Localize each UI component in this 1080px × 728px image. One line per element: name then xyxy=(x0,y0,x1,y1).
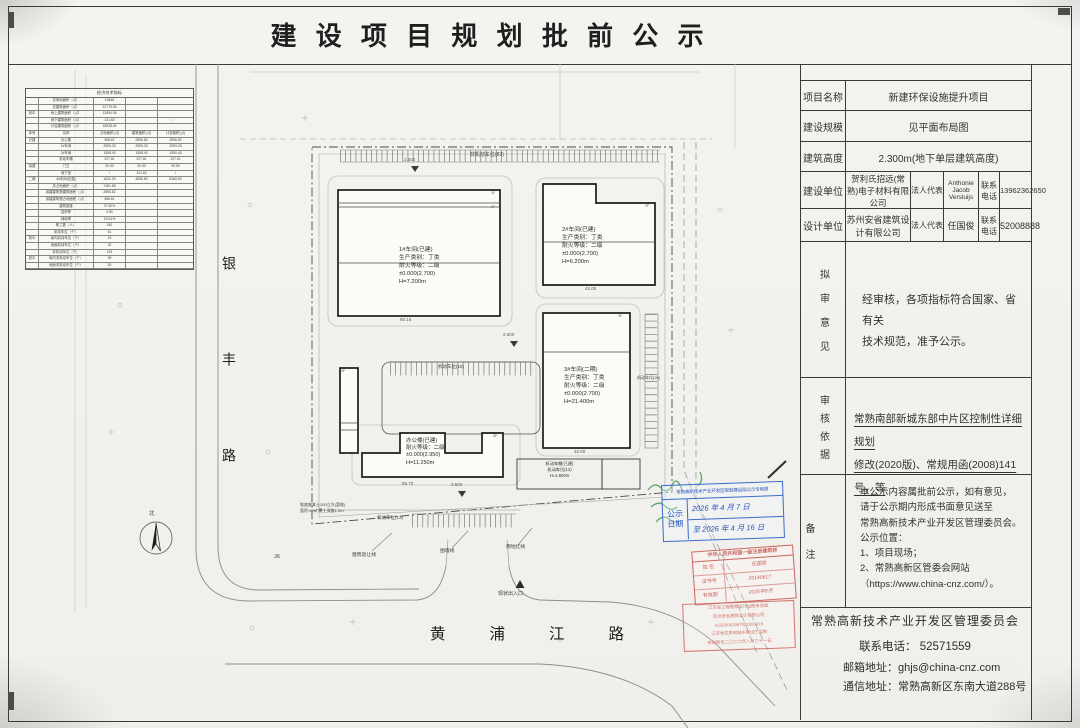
dim-office: 65.70 xyxy=(402,481,413,486)
scanned-planning-notice: 建 设 项 目 规 划 批 前 公 示 xyxy=(0,0,1080,728)
floor-mark: 3F xyxy=(341,369,345,373)
designer-rep: 任国俊 xyxy=(944,209,979,242)
building-label-line: ±0.000(2.700) xyxy=(562,250,603,258)
field-label: 建设单位 xyxy=(801,172,846,209)
building-label-line: 耐火等级：二级 xyxy=(406,445,445,452)
date-to: 至 2026 年 4 月 16 日 xyxy=(688,515,784,539)
econ-table-row: 拟建建筑物建筑面积（㎡） 2896.82 xyxy=(26,190,193,197)
econ-table-row: 拟建 门卫 90.50 90.50 90.50 xyxy=(26,164,193,171)
designer-company: 苏州安省建筑设计有限公司 xyxy=(846,209,911,242)
opinion-line: 经审核，各项指标符合国家、省有关 xyxy=(862,290,1021,332)
field-label: 拟审意见 xyxy=(801,242,846,378)
building1-label: 1#车间(已建)生产类别：丁类耐火等级：二级±0.000(2.700)H=7.2… xyxy=(399,246,440,286)
econ-table-row: 总建筑面积（㎡） 12775.06 xyxy=(26,105,193,112)
field-label: 审核依据 xyxy=(801,378,846,475)
parking-right-label: 机动车位(26) xyxy=(637,375,671,380)
building-label-line: ±0.000(2.700) xyxy=(564,390,605,398)
j6-label: J6 xyxy=(274,554,280,560)
building-label-line: 耐火等级：二级 xyxy=(399,262,440,270)
row-notes: 备注 本公示内容属批前公示，如有意见，请于公示期内形成书面意见送至常熟高新技术产… xyxy=(801,474,1031,608)
row-opinion: 拟审意见 经审核，各项指标符合国家、省有关 技术规范，准予公示。 xyxy=(801,241,1031,378)
floor-mark: 3F xyxy=(618,314,622,318)
econ-table-row: 地下建筑面积（㎡） 121.60 xyxy=(26,118,193,125)
field-label: 建设规模 xyxy=(801,111,846,142)
footer-email: 邮箱地址：ghjs@china-cnz.com xyxy=(843,659,1000,675)
field-label: 建筑高度 xyxy=(801,142,846,172)
blue-stamp-dates: 2026 年 4 月 7 日 至 2026 年 4 月 16 日 xyxy=(688,496,784,539)
field-label: 设计单位 xyxy=(801,209,846,242)
econ-table-row: 地面非机动车位（个） 30 xyxy=(26,263,193,270)
blue-stamp-label-line: 公示 xyxy=(667,509,683,520)
econ-table-row: 2#车间 1558.40 1558.40 1550.40 xyxy=(26,151,193,158)
dim-b3: 32.00 xyxy=(574,449,585,454)
field-label: 项目名称 xyxy=(801,81,846,111)
econ-table-title: 经济技术指标 xyxy=(26,89,193,98)
dim-b2: 42.00 xyxy=(585,286,596,291)
notes-text: 本公示内容属批前公示，如有意见，请于公示期内形成书面意见送至常熟高新技术产业开发… xyxy=(846,475,1031,608)
tower-building xyxy=(340,368,358,453)
row-scale: 建设规模 见平面布局图 xyxy=(801,110,1031,142)
building-label-line: ±0.000(2.950) xyxy=(406,452,445,459)
office-label: 办公楼(已建)耐火等级：二级±0.000(2.950)H=11.250m xyxy=(406,438,445,467)
note-line: 本公示内容属批前公示，如有意见， xyxy=(860,485,1027,500)
econ-table-row: 其中 库内非机动车位（个） 95 xyxy=(26,256,193,263)
blue-stamp-label-line: 日期 xyxy=(667,519,683,530)
tel-label: 联系电话 xyxy=(979,172,1000,209)
building-label-line: 生产类别：丁类 xyxy=(562,234,603,242)
basis-text: 常熟南部新城东部中片区控制性详细规划 修改(2020版)、常规用函(2008)1… xyxy=(846,378,1031,475)
econ-table-row: 其中 地上建筑面积（㎡） 12654.06 xyxy=(26,111,193,118)
field-value: 新建环保设施提升项目 xyxy=(846,81,1031,111)
building-label-line: 生产类别：丁类 xyxy=(399,254,440,262)
red-stamp-rows: 姓 名 任国俊 证书号 20140617 有效期 2026年8月 xyxy=(693,556,796,604)
elevation-label: 2.500 xyxy=(451,482,462,487)
footer-org: 常熟高新技术产业开发区管理委员会 xyxy=(800,612,1030,629)
building-label-line: 耐火等级：二级 xyxy=(562,242,603,250)
red-design-seal-stamp: 江苏省工程勘察设计出图专用章苏州安省建筑设计有限公司A1500082967001… xyxy=(682,600,796,652)
tel-label: 联系电话 xyxy=(979,209,1000,242)
field-value: 见平面布局图 xyxy=(846,111,1031,142)
field-label: 备注 xyxy=(801,475,846,608)
builder-company: 贺利氏招远(常熟)电子材料有限公司 xyxy=(846,172,911,209)
floor-mark: 1F xyxy=(491,205,495,209)
blue-stamp-body: 公示 日期 2026 年 4 月 7 日 至 2026 年 4 月 16 日 xyxy=(663,496,784,540)
econ-table-rows: 总用地面积（㎡） 19848 总建筑面积（㎡） 12775.06 其中 地上建筑… xyxy=(26,98,193,269)
north-compass xyxy=(140,522,172,554)
building-label-line: H=2.800m xyxy=(519,473,600,479)
entrance-marker xyxy=(516,580,525,588)
building-label-line: 耐火等级：二级 xyxy=(564,382,605,390)
building-label-line: H=7.200m xyxy=(399,278,440,286)
carport-label: 机动车棚(已建)机动车位(12)H=2.800m xyxy=(519,461,600,480)
designer-tel: 52008888 xyxy=(1000,209,1040,242)
econ-table-row: 总占地面积（㎡） 7461.85 xyxy=(26,184,193,191)
econ-table-row: 建筑密度 37.60% xyxy=(26,204,193,211)
pen-mark xyxy=(768,461,786,478)
building-label-line: 1#车间(已建) xyxy=(399,246,440,254)
setback-line-label: 建筑退让线 xyxy=(352,551,376,558)
econ-table-row: 绿地率 19.61% xyxy=(26,217,193,224)
floor-mark: 2F xyxy=(645,204,649,208)
row-basis: 审核依据 常熟南部新城东部中片区控制性详细规划 修改(2020版)、常规用函(2… xyxy=(801,377,1031,475)
floor-mark: 3F xyxy=(493,434,497,438)
opinion-text: 经审核，各项指标符合国家、省有关 技术规范，准予公示。 xyxy=(846,242,1031,378)
econ-table-row: 机动车棚 227.81 227.81 227.01 xyxy=(26,157,193,164)
econ-table-row: 非机动车位（个） 125 xyxy=(26,250,193,257)
wall-line-label: 围墙线 xyxy=(440,547,454,554)
soil-note-line2: 面积:90㎡ 覆土深度1.2m xyxy=(300,508,344,514)
row-project-name: 项目名称 新建环保设施提升项目 xyxy=(801,80,1031,111)
road-name-bottom: 黄浦江路 xyxy=(430,622,668,644)
blue-stamp-label: 公示 日期 xyxy=(663,499,689,540)
field-value: 2.300m(地下单层建筑高度) xyxy=(846,142,1031,172)
note-line: 请于公示期内形成书面意见送至 xyxy=(860,500,1027,515)
building-label-line: H=11.250m xyxy=(406,460,445,467)
econ-table-row: 机动车位（个） 61 xyxy=(26,230,193,237)
econ-table-row: 已建 办公楼 968.61 2896.82 2896.82 xyxy=(26,138,193,145)
econ-table-row: 计容建筑面积（㎡） 15928.06 xyxy=(26,124,193,131)
econ-table-row: 序号 名称 占地面积(㎡) 建筑面积(㎡) 计容面积(㎡) xyxy=(26,131,193,138)
econ-table-row: 地面机动车位（个） 32 xyxy=(26,243,193,250)
parking-top-label: 非机动车位(83) xyxy=(470,151,504,158)
econ-table-row: 1#车间 2993.33 2993.33 2993.33 xyxy=(26,144,193,151)
building-label-line: 3#车间(二期) xyxy=(564,366,605,374)
econ-table-row: 二期 3#车间(在建) 1632.00 4898.80 8160.00 xyxy=(26,177,193,184)
note-line: （https://www.china-cnz.com/）。 xyxy=(860,577,1027,592)
builder-rep: Anthonie Jacob Versluijs xyxy=(944,172,979,209)
row-designer: 设计单位 苏州安省建筑设计有限公司 法人代表 任国俊 联系电话 52008888 xyxy=(801,208,1031,242)
red-line-label: 用地红线 xyxy=(506,543,525,550)
econ-table-row: 拟建建筑物占地面积（㎡） 968.61 xyxy=(26,197,193,204)
road-name-left: 银丰路 xyxy=(219,256,239,544)
building-label-line: 生产类别：丁类 xyxy=(564,374,605,382)
floor-mark: 1F xyxy=(491,191,495,195)
rep-label: 法人代表 xyxy=(911,172,944,209)
parking-bottom-label: 机动车位(13) xyxy=(377,515,403,521)
note-line: 公示位置： xyxy=(860,531,1027,546)
note-line: 2、常熟高新区管委会网站 xyxy=(860,561,1027,576)
parking-mid-label: 机动车位(18) xyxy=(438,364,464,370)
row-height: 建筑高度 2.300m(地下单层建筑高度) xyxy=(801,141,1031,172)
econ-table-row: 总用地面积（㎡） 19848 xyxy=(26,98,193,105)
row-builder: 建设单位 贺利氏招远(常熟)电子材料有限公司 法人代表 Anthonie Jac… xyxy=(801,171,1031,209)
opinion-line: 技术规范，准予公示。 xyxy=(862,332,1021,353)
note-line: 常熟高新技术产业开发区管理委员会。 xyxy=(860,516,1027,531)
building-label-line: 2#车间(已建) xyxy=(562,226,603,234)
elevation-label: 2.500 xyxy=(404,157,415,162)
note-line: 1、项目现场； xyxy=(860,546,1027,561)
north-label: 北 xyxy=(149,509,155,517)
elevation-label: 2.500 xyxy=(503,332,514,337)
econ-table-row: 容积率 0.80 xyxy=(26,210,193,217)
building-label-line: ±0.000(2.700) xyxy=(399,270,440,278)
econ-table-row: 地下室 / 121.60 / xyxy=(26,171,193,178)
basis-line: 常熟南部新城东部中片区控制性详细规划 xyxy=(854,408,1027,454)
rep-label: 法人代表 xyxy=(911,209,944,242)
footer-tel: 联系电话： 52571559 xyxy=(800,638,1030,654)
economic-indicators-table: 经济技术指标 总用地面积（㎡） 19848 总建筑面积（㎡） 12775.06 xyxy=(25,88,194,270)
building-label-line: H=6.200m xyxy=(562,258,603,266)
entrance-label: 现状出入口 xyxy=(498,590,523,597)
building2-label: 2#车间(已建)生产类别：丁类耐火等级：二级±0.000(2.700)H=6.2… xyxy=(562,226,603,266)
dim-b1: 60.16 xyxy=(400,317,411,322)
blue-publicity-date-stamp: 常熟高新技术产业开发区规划建设局公示专用章 公示 日期 2026 年 4 月 7… xyxy=(661,481,785,542)
builder-tel: 13962362650 xyxy=(1000,172,1046,209)
econ-table-row: 其中 库内机动车位（个） 29 xyxy=(26,236,193,243)
footer-address: 通信地址：常熟高新区东南大道288号 xyxy=(843,678,1026,694)
building-label-line: H=21.400m xyxy=(564,398,605,406)
red-architect-cert-stamp: 中华人民共和国一级注册建筑师 姓 名 任国俊 证书号 20140617 有效期 … xyxy=(691,545,797,606)
econ-table-row: 职工数（人） 160 xyxy=(26,223,193,230)
building3-label: 3#车间(二期)生产类别：丁类耐火等级：二级±0.000(2.700)H=21.… xyxy=(564,366,605,406)
